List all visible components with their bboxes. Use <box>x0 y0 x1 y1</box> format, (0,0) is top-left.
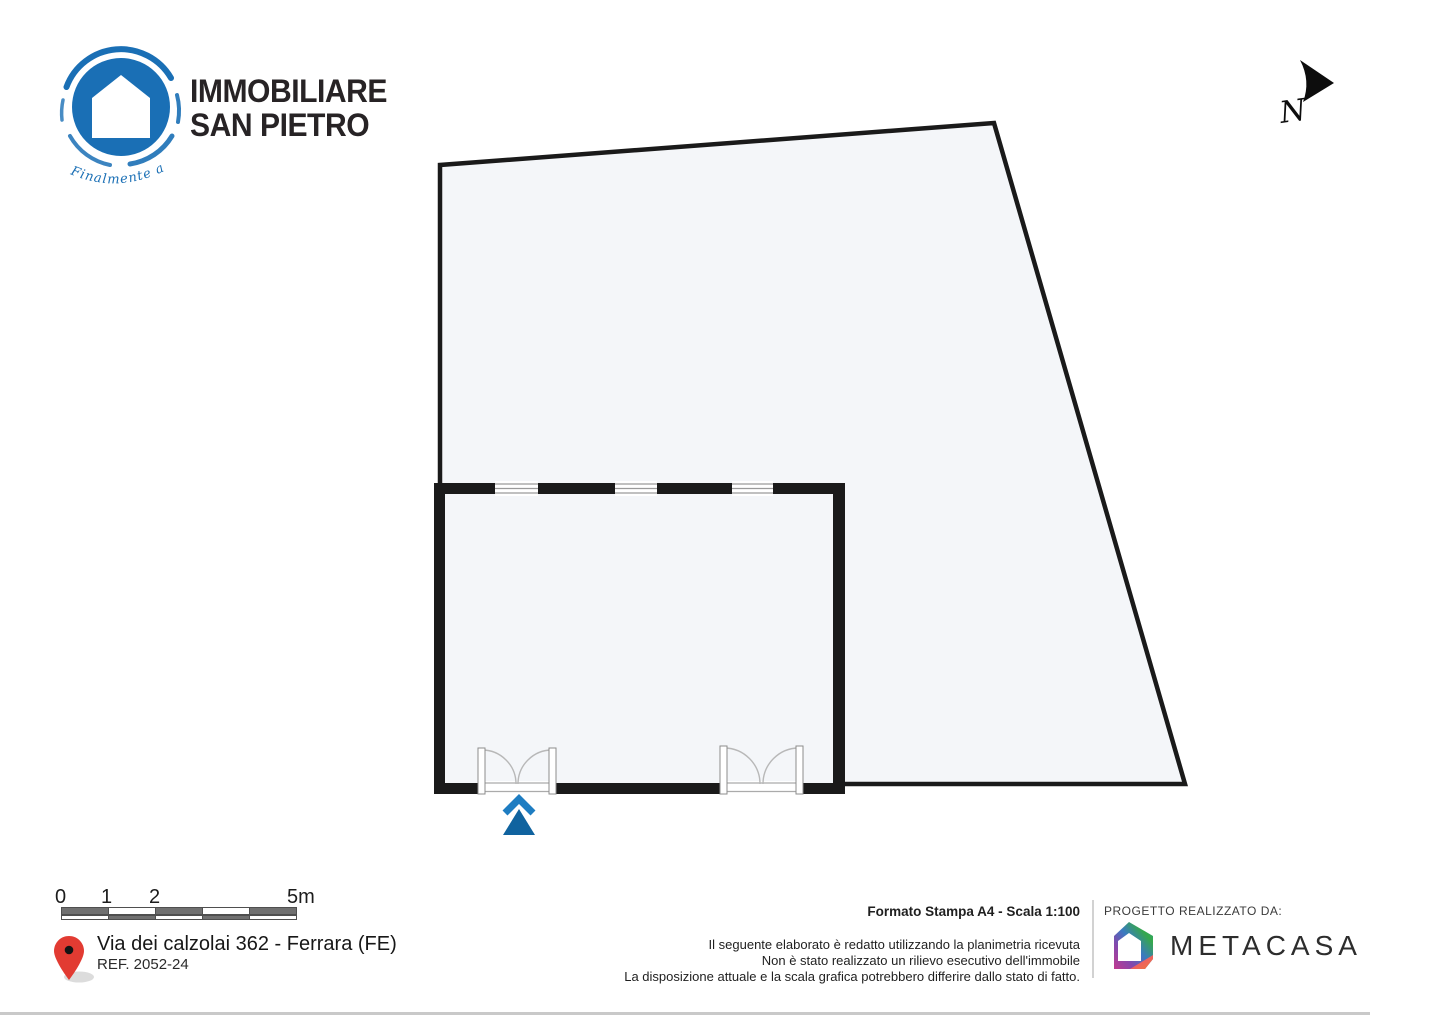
building-interior <box>445 494 833 783</box>
scale-bar <box>61 907 301 920</box>
window <box>732 481 773 496</box>
credits-heading: PROGETTO REALIZZATO DA: <box>1104 904 1282 918</box>
metacasa-logo-icon <box>1104 921 1162 973</box>
window <box>495 481 538 496</box>
agency-name: IMMOBILIARE SAN PIETRO <box>190 74 387 142</box>
print-format: Formato Stampa A4 - Scala 1:100 <box>620 904 1080 919</box>
property-address: Via dei calzolai 362 - Ferrara (FE) <box>97 933 397 956</box>
disclaimer-line: La disposizione attuale e la scala grafi… <box>620 969 1080 985</box>
agency-name-line2: SAN PIETRO <box>190 108 387 142</box>
disclaimer-line: Non è stato realizzato un rilievo esecut… <box>620 953 1080 969</box>
footer-divider <box>1092 900 1094 978</box>
window <box>615 481 657 496</box>
scale-label-1: 1 <box>101 886 112 909</box>
scale-label-2: 2 <box>149 886 160 909</box>
north-arrow-icon: N <box>1268 44 1358 134</box>
print-info: Formato Stampa A4 - Scala 1:100 Il segue… <box>620 904 1080 985</box>
metacasa-name: METACASA <box>1170 930 1362 962</box>
page-bottom-rule <box>0 1012 1370 1015</box>
agency-name-line1: IMMOBILIARE <box>190 74 387 108</box>
disclaimer-line: Il seguente elaborato è redatto utilizza… <box>620 937 1080 953</box>
scale-label-5m: 5m <box>287 886 315 909</box>
agency-logo-icon: Finalmente a Casa <box>58 40 190 198</box>
entrance-arrow-icon <box>503 799 535 835</box>
scale-label-0: 0 <box>55 886 66 909</box>
agency-logo: Finalmente a Casa IMMOBILIARE SAN PIETRO <box>58 40 518 200</box>
location-pin-icon <box>50 934 94 984</box>
reference-number: REF. 2052-24 <box>97 956 189 973</box>
